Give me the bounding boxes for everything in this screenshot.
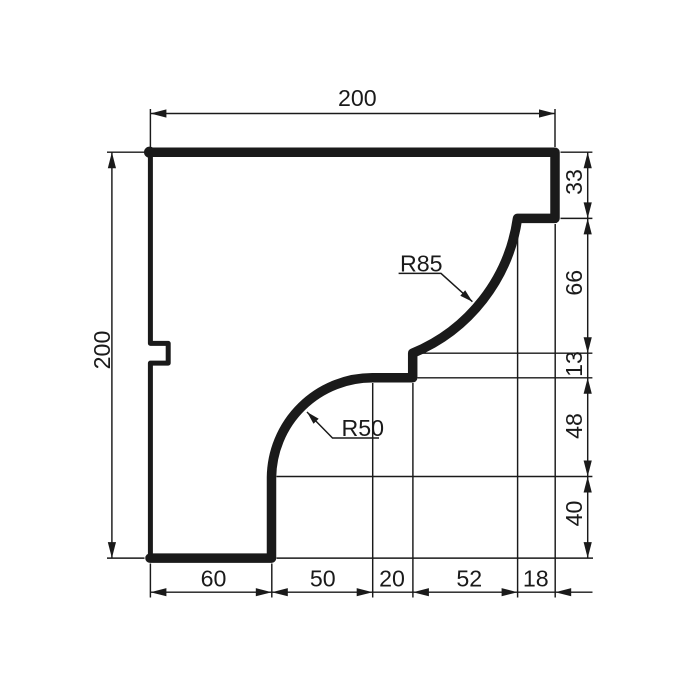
svg-text:20: 20 (379, 565, 405, 591)
svg-text:200: 200 (338, 85, 377, 111)
svg-text:R85: R85 (400, 251, 443, 277)
svg-text:R50: R50 (342, 415, 385, 441)
svg-text:13: 13 (561, 351, 587, 377)
svg-text:18: 18 (523, 565, 549, 591)
svg-text:40: 40 (561, 501, 587, 527)
svg-text:33: 33 (561, 169, 587, 195)
svg-text:60: 60 (201, 565, 227, 591)
svg-text:66: 66 (561, 270, 587, 296)
svg-text:50: 50 (310, 565, 336, 591)
svg-text:52: 52 (456, 565, 482, 591)
svg-text:200: 200 (89, 331, 115, 370)
svg-text:48: 48 (561, 413, 587, 439)
